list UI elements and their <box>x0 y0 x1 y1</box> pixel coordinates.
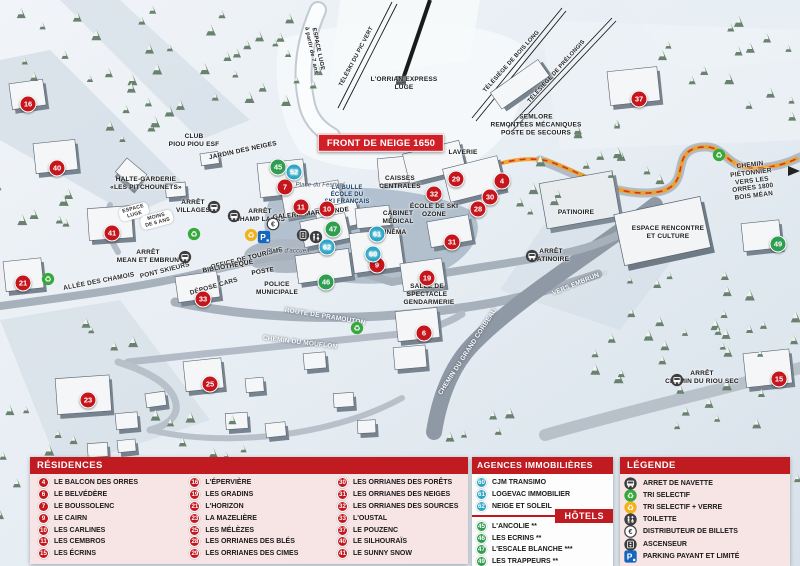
item-label: LE SUNNY SNOW <box>353 550 412 557</box>
map-label: Place d'accueil <box>267 248 310 255</box>
legend-item: 16L'ÉPERVIÈRE <box>189 477 333 489</box>
map-marker-31: 31 <box>444 234 461 251</box>
legend-item: ♻TRI SELECTIF + VERRE <box>624 501 786 513</box>
agences-list: 60CJM TRANSIMO61LOGEVAC IMMOBILIER62NEIG… <box>476 477 609 512</box>
map-marker-21: 21 <box>15 275 32 292</box>
agences-hotels-panel: AGENCES IMMOBILIÈRES 60CJM TRANSIMO61LOG… <box>472 457 613 566</box>
legend-item: 49LES TRAPPEURS ** <box>476 556 609 566</box>
svg-text:♻: ♻ <box>44 275 51 284</box>
item-label: DISTRIBUTEUR DE BILLETS <box>643 528 738 535</box>
svg-text:♻: ♻ <box>190 230 197 239</box>
item-label: NEIGE ET SOLEIL <box>492 503 552 510</box>
recycle-green-icon: ♻ <box>624 489 637 502</box>
residences-column: 30LES ORRIANES DES FORÊTS31LES ORRIANES … <box>333 477 464 560</box>
svg-text:€: € <box>629 528 633 536</box>
map-marker-7: 7 <box>277 179 294 196</box>
legend-item: 37LE POUZENC <box>337 524 464 536</box>
map-marker-37: 37 <box>631 91 648 108</box>
map-marker-61: 61 <box>369 226 386 243</box>
item-number-badge: 62 <box>476 501 487 512</box>
map-marker-46: 46 <box>318 274 335 291</box>
item-label: LES TRAPPEURS ** <box>492 558 558 565</box>
item-number-badge: 19 <box>189 489 200 500</box>
svg-text:€: € <box>271 221 275 229</box>
residences-panel: RÉSIDENCES 4LE BALCON DES ORRES6LE BELVÉ… <box>30 457 468 564</box>
recycle-yellow-icon: ♻ <box>245 229 258 242</box>
hotels-header: HÔTELS <box>555 509 613 523</box>
item-label: LE BELVÉDÈRE <box>54 491 107 498</box>
map-marker-4: 4 <box>494 173 511 190</box>
legend-item: 32LES ORRIANES DES SOURCES <box>337 501 464 513</box>
item-number-badge: 15 <box>38 548 49 559</box>
map-marker-60: 60 <box>365 246 382 263</box>
item-label: LES CEMBROS <box>54 538 105 545</box>
map-marker-28: 28 <box>470 201 487 218</box>
item-number-badge: 7 <box>38 501 49 512</box>
bus-icon <box>208 201 221 214</box>
legend-item: PPARKING PAYANT ET LIMITÉ <box>624 550 786 562</box>
bus-icon <box>179 251 192 264</box>
item-label: LES ORRIANES DES CIMES <box>205 550 298 557</box>
item-label: LE POUZENC <box>353 527 398 534</box>
legend-item: 23LA MAZELIÈRE <box>189 512 333 524</box>
legend-item: 29LES ORRIANES DES CIMES <box>189 548 333 560</box>
item-label: LE CAIRN <box>54 515 87 522</box>
item-number-badge: 6 <box>38 489 49 500</box>
item-number-badge: 32 <box>337 501 348 512</box>
map-label: ÉCOLE DE SKI OZONE <box>410 203 458 219</box>
map-label: CLUB PIOU PIOU ESF <box>169 133 220 149</box>
item-label: L'ANCOLIE ** <box>492 523 537 530</box>
hotels-separator: HÔTELS <box>472 515 613 517</box>
item-label: TRI SELECTIF <box>643 492 690 499</box>
item-label: L'ÉPERVIÈRE <box>205 479 251 486</box>
map-label: CABINET MÉDICAL <box>382 210 413 226</box>
map-label: ESPACE RENCONTRE ET CULTURE <box>632 225 704 241</box>
map-label: CAISSES CENTRALES <box>379 175 421 191</box>
map-label: ARRÊT MEAN ET EMBRUN <box>117 249 179 265</box>
map-marker-32: 32 <box>426 186 443 203</box>
bus-icon <box>671 374 684 387</box>
legend-item: 40LE SILHOURAÏS <box>337 536 464 548</box>
legend-item: TOILETTE <box>624 514 786 526</box>
legend-item: 30LES ORRIANES DES FORÊTS <box>337 477 464 489</box>
legend-item: 31LES ORRIANES DES NEIGES <box>337 489 464 501</box>
map-marker-11: 11 <box>293 199 310 216</box>
item-label: ASCENSEUR <box>643 541 687 548</box>
legend-item: 33L'OUSTAL <box>337 512 464 524</box>
bus-icon <box>624 477 637 490</box>
map-marker-45: 45 <box>270 159 287 176</box>
map-label: Place du Festival <box>295 182 344 189</box>
legend-item: 15LES ÉCRINS <box>38 548 185 560</box>
euro-icon: € <box>624 525 637 538</box>
item-number-badge: 21 <box>189 501 200 512</box>
map-marker-41: 41 <box>104 225 121 242</box>
item-number-badge: 41 <box>337 548 348 559</box>
legende-header: LÉGENDE <box>620 457 790 474</box>
item-number-badge: 37 <box>337 525 348 536</box>
svg-text:♻: ♻ <box>247 231 254 240</box>
legend-item: ARRET DE NAVETTE <box>624 477 786 489</box>
parking-icon: P <box>624 550 637 563</box>
map-label: FRONT DE NEIGE 1650 <box>318 134 444 152</box>
legend-item: 10LES CARLINES <box>38 524 185 536</box>
map-label: GENDARMERIE <box>404 299 455 307</box>
item-label: LES GRADINS <box>205 491 253 498</box>
recycle-green-icon: ♻ <box>351 322 364 335</box>
bus-icon <box>526 250 539 263</box>
map-label: PATINOIRE <box>558 209 594 217</box>
map-label: CHEMIN PIÉTONNIER VERS LES ORRES 1800 BO… <box>726 159 778 204</box>
svg-text:♻: ♻ <box>353 324 360 333</box>
item-number-badge: 60 <box>476 477 487 488</box>
item-label: ARRET DE NAVETTE <box>643 480 713 487</box>
legende-panel: LÉGENDE ARRET DE NAVETTE♻TRI SELECTIF♻TR… <box>620 457 790 566</box>
item-number-badge: 16 <box>189 477 200 488</box>
map-marker-29: 29 <box>448 171 465 188</box>
map-label: POLICE MUNICIPALE <box>256 281 298 297</box>
map-marker-40: 40 <box>49 160 66 177</box>
map-marker-52: 52 <box>286 164 303 181</box>
legende-list: ARRET DE NAVETTE♻TRI SELECTIF♻TRI SELECT… <box>620 474 790 566</box>
item-number-badge: 9 <box>38 513 49 524</box>
map-marker-25: 25 <box>202 376 219 393</box>
svg-text:P: P <box>627 551 633 561</box>
legend-item: 6LE BELVÉDÈRE <box>38 489 185 501</box>
legend-item: 7LE BOUSSOLENC <box>38 501 185 513</box>
map-marker-33: 33 <box>195 291 212 308</box>
map-label: ARRÊT VILLAGES <box>176 199 210 215</box>
item-number-badge: 23 <box>189 513 200 524</box>
item-label: L'ESCALE BLANCHE *** <box>492 546 573 553</box>
recycle-green-icon: ♻ <box>42 273 55 286</box>
legend-item: 41LE SUNNY SNOW <box>337 548 464 560</box>
item-label: LES MÉLÈZES <box>205 527 254 534</box>
residences-column: 4LE BALCON DES ORRES6LE BELVÉDÈRE7LE BOU… <box>34 477 185 560</box>
legend-item: ASCENSEUR <box>624 538 786 550</box>
toilet-icon <box>624 513 637 526</box>
legend-item: €DISTRIBUTEUR DE BILLETS <box>624 526 786 538</box>
legend-item: 28LES ORRIANES DES BLÉS <box>189 536 333 548</box>
item-label: L'OUSTAL <box>353 515 387 522</box>
elevator-icon <box>624 538 637 551</box>
agences-header: AGENCES IMMOBILIÈRES <box>472 457 613 474</box>
item-label: TRI SELECTIF + VERRE <box>643 504 722 511</box>
recycle-green-icon: ♻ <box>188 228 201 241</box>
residences-column: 16L'ÉPERVIÈRE19LES GRADINS21L'HORIZON23L… <box>185 477 333 560</box>
item-label: LES ORRIANES DES FORÊTS <box>353 479 452 486</box>
item-label: LOGEVAC IMMOBILIER <box>492 491 570 498</box>
bus-icon <box>228 210 241 223</box>
item-number-badge: 29 <box>189 548 200 559</box>
map-marker-49: 49 <box>770 236 787 253</box>
svg-text:♻: ♻ <box>627 491 634 500</box>
item-label: LES ORRIANES DES SOURCES <box>353 503 458 510</box>
map-marker-6: 6 <box>416 325 433 342</box>
map-label: LAVERIE <box>448 149 477 157</box>
elevator-icon <box>297 229 310 242</box>
item-label: LES ECRINS ** <box>492 535 541 542</box>
item-number-badge: 10 <box>38 525 49 536</box>
item-number-badge: 45 <box>476 521 487 532</box>
svg-text:♻: ♻ <box>715 151 722 160</box>
item-label: LES CARLINES <box>54 527 105 534</box>
legend-item: ♻TRI SELECTIF <box>624 489 786 501</box>
item-label: LE BOUSSOLENC <box>54 503 114 510</box>
item-number-badge: 33 <box>337 513 348 524</box>
item-number-badge: 11 <box>38 536 49 547</box>
legend-item: 4LE BALCON DES ORRES <box>38 477 185 489</box>
item-number-badge: 30 <box>337 477 348 488</box>
hotels-list: 45L'ANCOLIE **46LES ECRINS **47L'ESCALE … <box>476 520 609 566</box>
map-label: SEMLORE REMONTÉES MÉCANIQUES POSTE DE SE… <box>490 113 581 136</box>
legend-item: 21L'HORIZON <box>189 501 333 513</box>
item-label: LES ORRIANES DES NEIGES <box>353 491 450 498</box>
map-marker-62: 62 <box>319 239 336 256</box>
item-number-badge: 49 <box>476 556 487 566</box>
item-number-badge: 31 <box>337 489 348 500</box>
euro-icon: € <box>267 218 280 231</box>
svg-text:P: P <box>260 232 266 242</box>
item-number-badge: 46 <box>476 533 487 544</box>
legend-item: 9LE CAIRN <box>38 512 185 524</box>
item-number-badge: 4 <box>38 477 49 488</box>
map-marker-19: 19 <box>419 270 436 287</box>
item-label: CJM TRANSIMO <box>492 479 546 486</box>
item-label: LE SILHOURAÏS <box>353 538 407 545</box>
map-marker-16: 16 <box>20 96 37 113</box>
legend-item: 60CJM TRANSIMO <box>476 477 609 489</box>
recycle-yellow-icon: ♻ <box>624 501 637 514</box>
item-number-badge: 47 <box>476 544 487 555</box>
item-number-badge: 28 <box>189 536 200 547</box>
residences-list: 4LE BALCON DES ORRES6LE BELVÉDÈRE7LE BOU… <box>30 474 468 564</box>
map-marker-23: 23 <box>80 392 97 409</box>
legend-item: 25LES MÉLÈZES <box>189 524 333 536</box>
map-marker-15: 15 <box>771 371 788 388</box>
map-marker-47: 47 <box>325 221 342 238</box>
recycle-green-icon: ♻ <box>713 149 726 162</box>
item-label: L'HORIZON <box>205 503 243 510</box>
svg-text:♻: ♻ <box>627 503 634 512</box>
legend-item: 47L'ESCALE BLANCHE *** <box>476 544 609 556</box>
legend-item: 46LES ECRINS ** <box>476 532 609 544</box>
legend-item: 19LES GRADINS <box>189 489 333 501</box>
item-label: LES ÉCRINS <box>54 550 96 557</box>
legend-item: 11LES CEMBROS <box>38 536 185 548</box>
item-label: LA MAZELIÈRE <box>205 515 256 522</box>
map-marker-10: 10 <box>319 201 336 218</box>
item-label: TOILETTE <box>643 516 677 523</box>
map-label: L'ORRIAN EXPRESS LUGE <box>371 76 438 92</box>
item-number-badge: 40 <box>337 536 348 547</box>
item-number-badge: 61 <box>476 489 487 500</box>
legend-item: 61LOGEVAC IMMOBILIER <box>476 489 609 501</box>
residences-header: RÉSIDENCES <box>30 457 468 474</box>
item-label: PARKING PAYANT ET LIMITÉ <box>643 553 739 560</box>
parking-icon: P <box>258 231 271 244</box>
item-label: LES ORRIANES DES BLÉS <box>205 538 294 545</box>
map-label: HALTE-GARDERIE «LES PITCHOUNETS» <box>110 176 182 192</box>
item-label: LE BALCON DES ORRES <box>54 479 138 486</box>
item-number-badge: 25 <box>189 525 200 536</box>
resort-map-page: FRONT DE NEIGE 1650L'ORRIAN EXPRESS LUGE… <box>0 0 800 566</box>
